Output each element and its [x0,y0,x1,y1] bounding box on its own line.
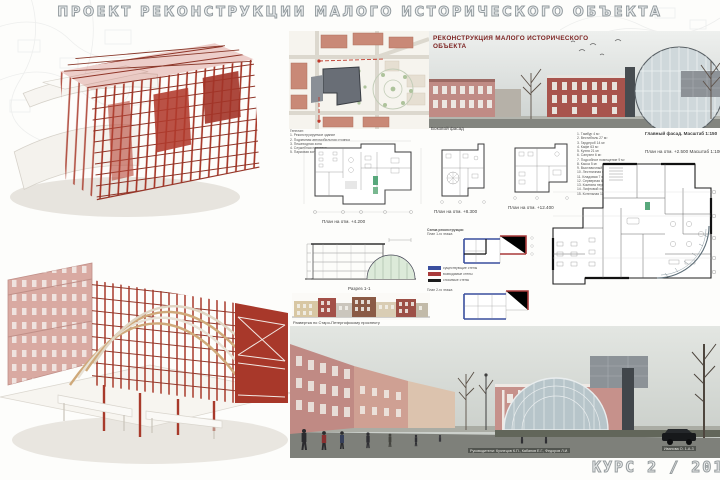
facade-render: РЕКОНСТРУКЦИЯ МАЛОГО ИСТОРИЧЕСКОГО ОБЪЕК… [429,31,720,133]
render-heading: РЕКОНСТРУКЦИЯ МАЛОГО ИСТОРИЧЕСКОГО ОБЪЕК… [433,35,603,52]
scheme-floor2-plan [448,288,543,327]
floor-plan-4200 [299,138,427,221]
render-heading-line1: РЕКОНСТРУКЦИЯ МАЛОГО ИСТОРИЧЕСКОГО [433,35,603,43]
section-drawing [303,232,418,289]
course-label: КУРС 2 / 2017 [592,458,720,476]
presentation-board: ПРОЕКТ РЕКОНСТРУКЦИИ МАЛОГО ИСТОРИЧЕСКОГ… [0,0,720,480]
model-photo-bottom [0,235,292,475]
caption-elevation-strip: Развертка по Старо-Петергофскому проспек… [293,320,380,325]
credits-author: Иванова О. 1-А-3 [662,446,696,451]
caption-side-facade: Боковой фасад [431,126,464,131]
caption-plan-8300: План на отм. +8.300 [434,209,477,214]
ground-floor-plan [545,158,717,297]
legend-label-new: возводимые стены [443,272,473,276]
street-perspective-render: Руководители: Кузнецов К.П., Кабанов Е.Г… [290,326,720,463]
site-plan-drawing [289,31,429,134]
caption-main-facade: Главный фасад. Масштаб 1:150 [645,131,717,136]
caption-plan-2500: План на отм. +2.500 Масштаб 1:100 [645,149,720,154]
legend-label-demolish: сносимые стены [443,278,469,282]
caption-section: Разрез 1-1 [348,286,371,291]
floor-plan-8300 [432,138,490,211]
caption-plan-4200: План на отм. +4.200 [322,219,365,224]
render-heading-line2: ОБЪЕКТА [433,43,603,51]
model-photo-top [5,25,285,240]
scheme-legend: существующие стены возводимые стены снос… [428,266,477,285]
legend-label-existing: существующие стены [443,266,477,270]
board-title: ПРОЕКТ РЕКОНСТРУКЦИИ МАЛОГО ИСТОРИЧЕСКОГ… [0,5,720,20]
legend-swatch-existing [428,266,441,270]
legend-swatch-new [428,272,441,276]
credits-supervisors: Руководители: Кузнецов К.П., Кабанов Е.Г… [468,448,570,453]
legend-swatch-demolish [428,279,441,283]
